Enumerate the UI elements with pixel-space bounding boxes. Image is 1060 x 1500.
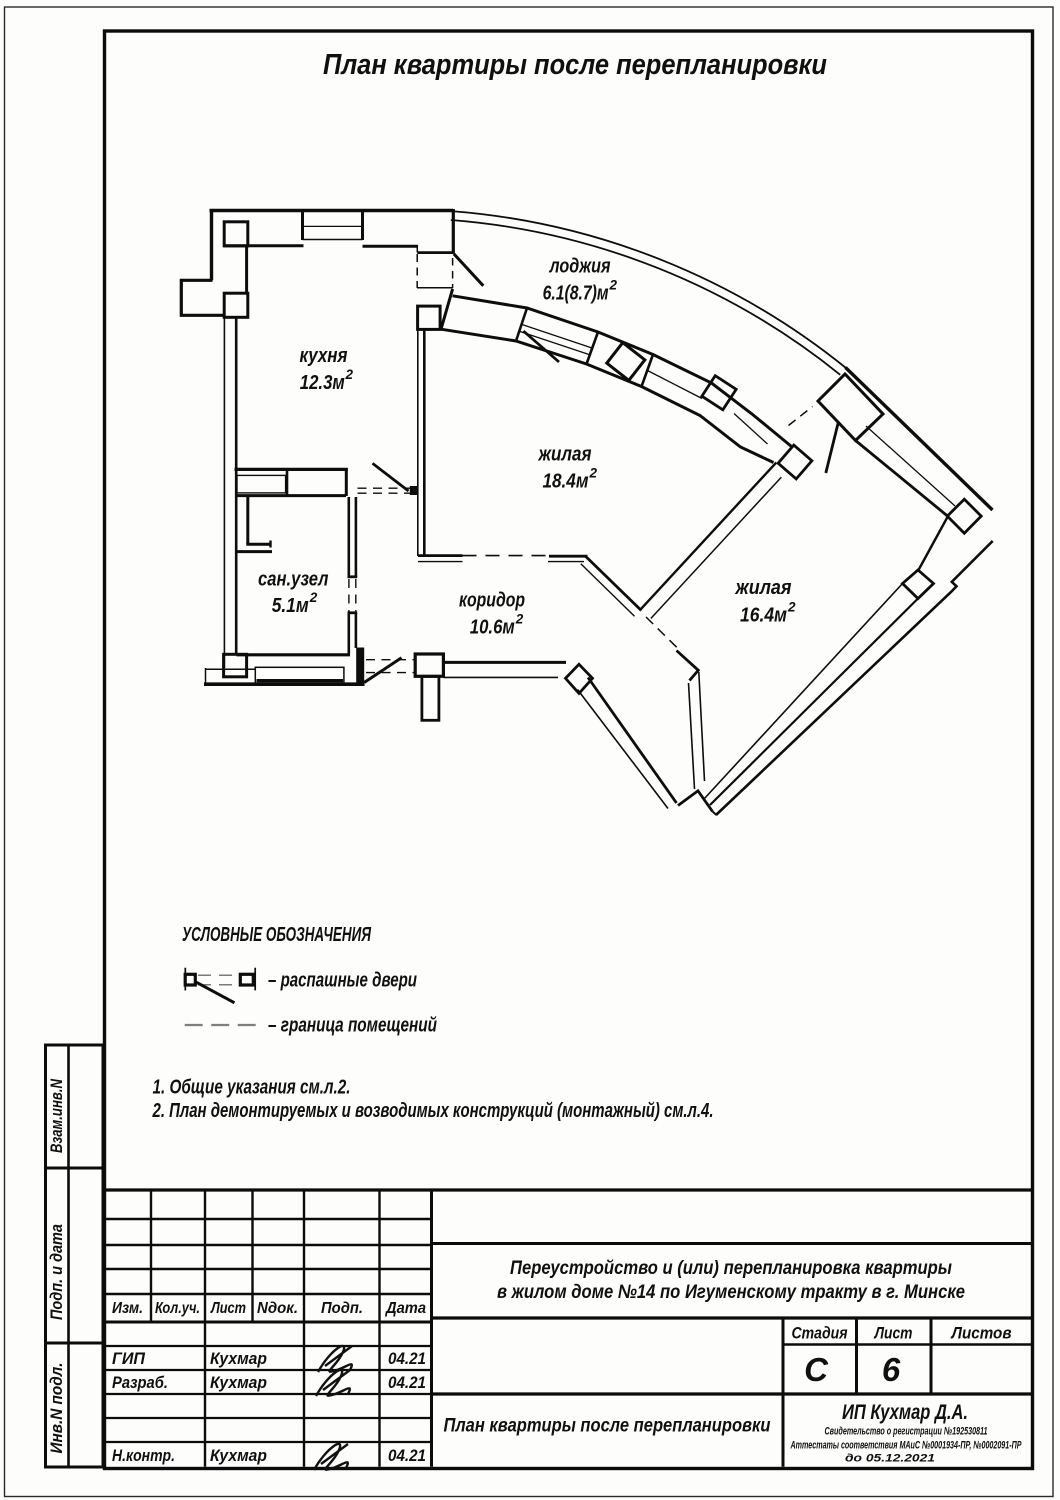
svg-text:План квартиры после перепланир: План квартиры после перепланировки (444, 1416, 771, 1437)
svg-text:в жилом доме №14 по Игуменском: в жилом доме №14 по Игуменскому тракту в… (497, 1281, 965, 1303)
svg-text:Кол.уч.: Кол.уч. (155, 1300, 200, 1317)
svg-text:Кухмар: Кухмар (210, 1374, 267, 1392)
svg-text:Кухмар: Кухмар (210, 1350, 267, 1368)
svg-text:коридор: коридор (459, 590, 525, 612)
svg-text:1. Общие указания см.л.2.: 1. Общие указания см.л.2. (153, 1076, 351, 1099)
svg-text:лоджия: лоджия (549, 256, 611, 278)
svg-text:кухня: кухня (300, 345, 348, 367)
svg-text:6.1(8.7)м: 6.1(8.7)м (543, 283, 609, 305)
svg-text:2. План демонтируемых и возвод: 2. План демонтируемых и возводимых конст… (152, 1099, 714, 1122)
svg-text:10.6м: 10.6м (470, 617, 515, 639)
svg-text:Аттестаты соответствия МАиС №0: Аттестаты соответствия МАиС №0001934-ПР,… (790, 1440, 1022, 1452)
svg-text:Стадия: Стадия (792, 1324, 848, 1343)
svg-text:Лист: Лист (210, 1300, 246, 1317)
svg-text:04.21: 04.21 (388, 1447, 426, 1465)
svg-text:Подп.: Подп. (321, 1300, 363, 1317)
svg-text:2: 2 (515, 612, 524, 627)
svg-text:Кухмар: Кухмар (210, 1447, 267, 1465)
svg-text:сан.узел: сан.узел (258, 569, 329, 591)
svg-text:Взам.инв.N: Взам.инв.N (47, 1078, 66, 1153)
svg-text:6: 6 (882, 1351, 901, 1388)
svg-text:Инв.N подл.: Инв.N подл. (47, 1363, 66, 1454)
svg-text:Подп. и дата: Подп. и дата (47, 1224, 66, 1320)
svg-text:Лист: Лист (873, 1324, 913, 1343)
svg-text:5.1м: 5.1м (272, 595, 309, 617)
svg-text:План квартиры после перепланир: План квартиры после перепланировки (323, 49, 827, 81)
svg-text:– распашные двери: – распашные двери (268, 970, 417, 992)
svg-text:04.21: 04.21 (388, 1374, 426, 1392)
svg-text:ГИП: ГИП (112, 1350, 146, 1368)
svg-text:Свидетельство о регистрации №1: Свидетельство о регистрации №192530811 (825, 1426, 988, 1438)
svg-text:Дата: Дата (384, 1300, 426, 1317)
svg-text:С: С (804, 1351, 829, 1388)
svg-text:жилая: жилая (538, 444, 592, 466)
svg-text:УСЛОВНЫЕ ОБОЗНАЧЕНИЯ: УСЛОВНЫЕ ОБОЗНАЧЕНИЯ (182, 923, 372, 946)
svg-text:жилая: жилая (735, 577, 792, 599)
svg-text:2: 2 (589, 466, 598, 481)
svg-text:Переустройство и (или) перепла: Переустройство и (или) перепланировка кв… (510, 1257, 952, 1279)
svg-text:Изм.: Изм. (112, 1300, 143, 1317)
svg-text:– граница помещений: – граница помещений (268, 1015, 437, 1037)
svg-text:2: 2 (345, 367, 354, 382)
svg-text:2: 2 (609, 278, 618, 293)
svg-text:ИП Кухмар Д.А.: ИП Кухмар Д.А. (842, 1401, 968, 1424)
svg-text:12.3м: 12.3м (300, 372, 345, 394)
svg-text:Nдок.: Nдок. (257, 1300, 298, 1317)
svg-text:16.4м: 16.4м (740, 605, 787, 627)
svg-text:18.4м: 18.4м (543, 471, 589, 493)
svg-text:04.21: 04.21 (388, 1350, 426, 1368)
svg-text:2: 2 (309, 590, 318, 605)
svg-text:Разраб.: Разраб. (112, 1374, 168, 1392)
svg-text:Н.контр.: Н.контр. (112, 1447, 175, 1465)
svg-text:до 05.12.2021: до 05.12.2021 (845, 1453, 935, 1465)
svg-text:Листов: Листов (950, 1324, 1012, 1343)
svg-text:2: 2 (787, 600, 796, 615)
